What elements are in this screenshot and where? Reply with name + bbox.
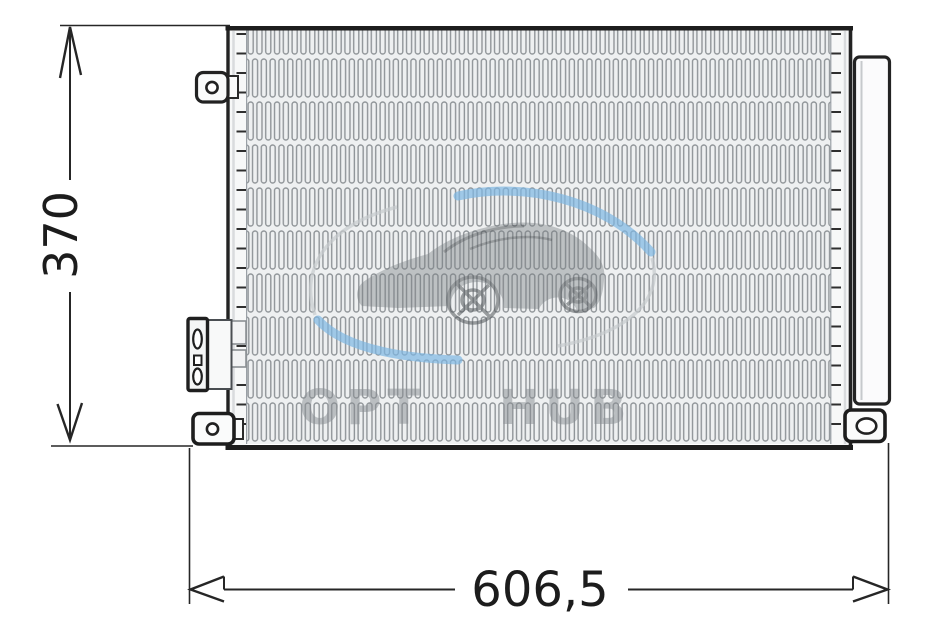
mounting-bracket-top-left xyxy=(197,73,239,103)
dimension-width: 606,5 xyxy=(190,443,889,618)
width-dimension-label: 606,5 xyxy=(471,562,608,618)
condenser-technical-drawing: OPT HUB xyxy=(0,0,950,633)
arrow-left-icon xyxy=(191,577,225,602)
bracket-slot-hole xyxy=(857,418,877,433)
drawing-canvas: OPT HUB xyxy=(0,0,950,633)
port-opening xyxy=(193,369,202,385)
receiver-drier xyxy=(855,57,890,404)
port-opening xyxy=(193,330,202,349)
right-header-tank xyxy=(831,27,852,447)
bracket-hole xyxy=(206,82,217,93)
arrow-right-icon xyxy=(853,577,888,602)
mounting-bracket-bottom-left xyxy=(193,414,243,445)
watermark-text: OPT HUB xyxy=(299,380,632,436)
height-dimension-label: 370 xyxy=(34,191,88,279)
bracket-hole xyxy=(207,423,218,434)
right-tank-tube-ticks xyxy=(831,33,841,441)
mounting-bracket-bottom-right xyxy=(845,410,885,442)
